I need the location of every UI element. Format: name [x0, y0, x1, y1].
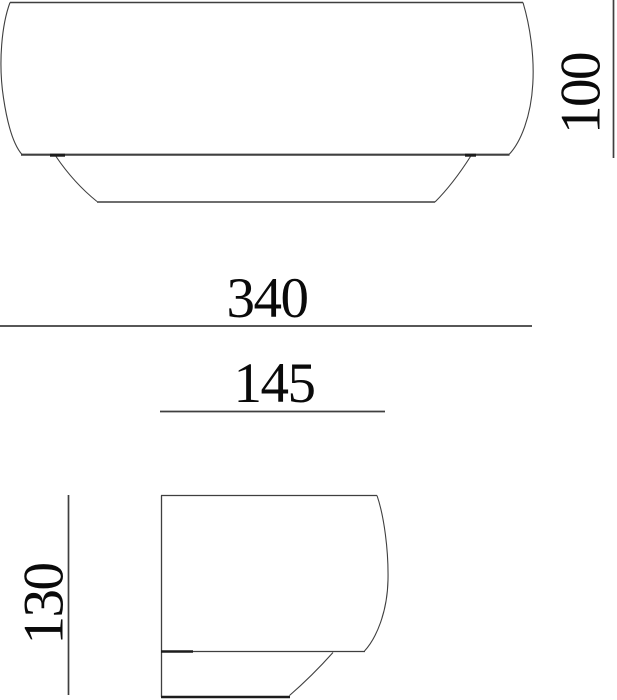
side-height-dimension: 130: [13, 495, 76, 695]
front-view: [1, 3, 533, 203]
front-width-dimension: 340: [0, 267, 532, 330]
front-diffuser-left-curve: [56, 157, 97, 202]
front-left-edge-curve: [1, 3, 22, 155]
front-height-dimension: 100: [550, 0, 614, 158]
front-diffuser-right-curve: [435, 157, 471, 203]
side-diffuser-curve: [290, 653, 334, 696]
drawing-sheet: 100 340 145 130: [0, 0, 617, 700]
side-depth-dimension-label: 145: [234, 352, 315, 415]
side-depth-dimension: 145: [160, 352, 385, 415]
side-view-thick-edges: [161, 652, 290, 698]
front-width-dimension-label: 340: [227, 267, 308, 330]
front-height-dimension-label: 100: [550, 53, 613, 134]
front-right-edge-curve: [509, 3, 533, 155]
side-view: [161, 496, 388, 698]
technical-drawing: 100 340 145 130: [0, 0, 617, 700]
side-right-edge-curve: [365, 496, 389, 652]
side-height-dimension-label: 130: [13, 564, 76, 645]
